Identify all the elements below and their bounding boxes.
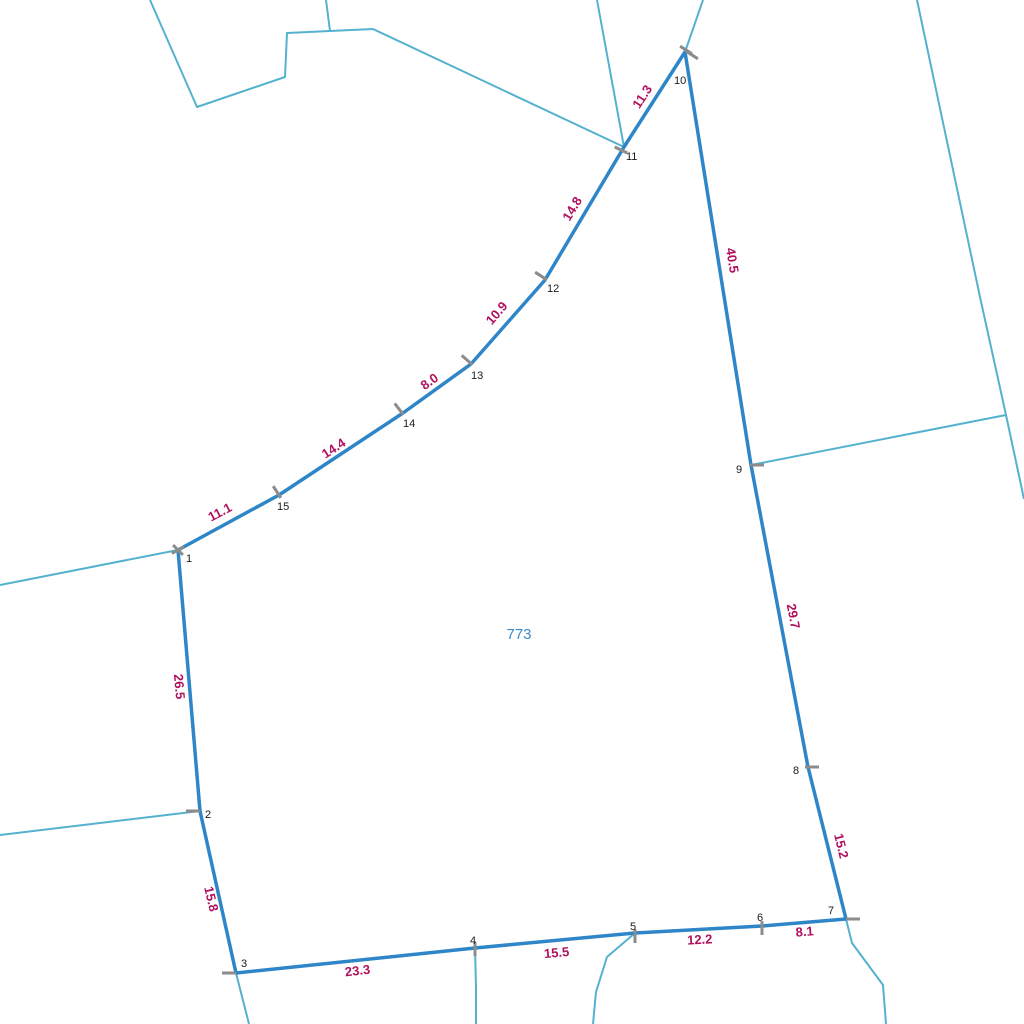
vertex-tick bbox=[222, 972, 236, 975]
adjacent-parcel-line bbox=[236, 973, 249, 1024]
map-canvas[interactable]: 1 2 3 4 5 6 7 8 9 10 11 12 13 14 15 26.5… bbox=[0, 0, 1024, 1024]
vertex-tick bbox=[394, 403, 405, 416]
adjacent-parcel-line bbox=[685, 0, 703, 52]
edge-length-label: 29.7 bbox=[784, 602, 804, 630]
adjacent-parcel-line bbox=[150, 0, 624, 147]
vertex-number-label: 1 bbox=[186, 553, 192, 565]
vertex-number-label: 6 bbox=[757, 912, 763, 924]
survey-map: 1 2 3 4 5 6 7 8 9 10 11 12 13 14 15 26.5… bbox=[0, 0, 1024, 1024]
vertex-number-label: 15 bbox=[277, 501, 289, 513]
adjacent-parcel-line bbox=[475, 948, 476, 1024]
vertex-number-label: 2 bbox=[205, 809, 211, 821]
vertex-number-label: 3 bbox=[241, 958, 247, 970]
adjacent-parcel-line bbox=[0, 550, 178, 585]
vertex-number-label: 7 bbox=[828, 905, 834, 917]
vertex-number-label: 4 bbox=[470, 935, 476, 947]
vertex-tick bbox=[461, 354, 474, 365]
adjacent-parcel-line bbox=[593, 933, 635, 1024]
edge-length-label: 26.5 bbox=[171, 673, 188, 700]
vertex-number-label: 13 bbox=[471, 370, 483, 382]
vertex-number-label: 11 bbox=[626, 151, 637, 163]
vertex-number-labels: 1 2 3 4 5 6 7 8 9 10 11 12 13 14 15 bbox=[186, 75, 834, 970]
vertex-number-label: 12 bbox=[547, 283, 559, 295]
edge-length-label: 8.1 bbox=[795, 923, 814, 940]
adjacent-parcel-line bbox=[917, 0, 1024, 499]
vertex-number-label: 9 bbox=[736, 464, 742, 476]
edge-length-label: 15.5 bbox=[543, 944, 570, 961]
adjacent-parcel-line bbox=[0, 811, 200, 835]
edge-length-label: 15.2 bbox=[831, 832, 852, 860]
edge-length-label: 12.2 bbox=[687, 931, 713, 947]
vertex-number-label: 10 bbox=[674, 75, 686, 87]
parcel-number-label: 773 bbox=[506, 626, 531, 643]
vertex-number-label: 8 bbox=[793, 765, 799, 777]
edge-length-labels: 26.5 15.8 23.3 15.5 12.2 8.1 15.2 29.7 4… bbox=[171, 82, 852, 979]
vertex-ticks bbox=[171, 45, 860, 975]
vertex-tick bbox=[846, 918, 860, 921]
adjacent-parcel-line bbox=[326, 0, 330, 31]
vertex-number-label: 14 bbox=[403, 418, 415, 430]
adjacent-parcel-line bbox=[597, 0, 624, 147]
vertex-number-label: 5 bbox=[630, 921, 636, 933]
adjacent-parcel-line bbox=[751, 415, 1006, 465]
edge-length-label: 40.5 bbox=[723, 247, 742, 274]
vertex-tick bbox=[186, 810, 200, 813]
edge-length-label: 23.3 bbox=[344, 962, 371, 980]
vertex-tick bbox=[805, 766, 819, 769]
adjacent-parcel-lines bbox=[0, 0, 1024, 1024]
vertex-tick bbox=[750, 464, 764, 467]
adjacent-parcel-line bbox=[846, 919, 886, 1024]
